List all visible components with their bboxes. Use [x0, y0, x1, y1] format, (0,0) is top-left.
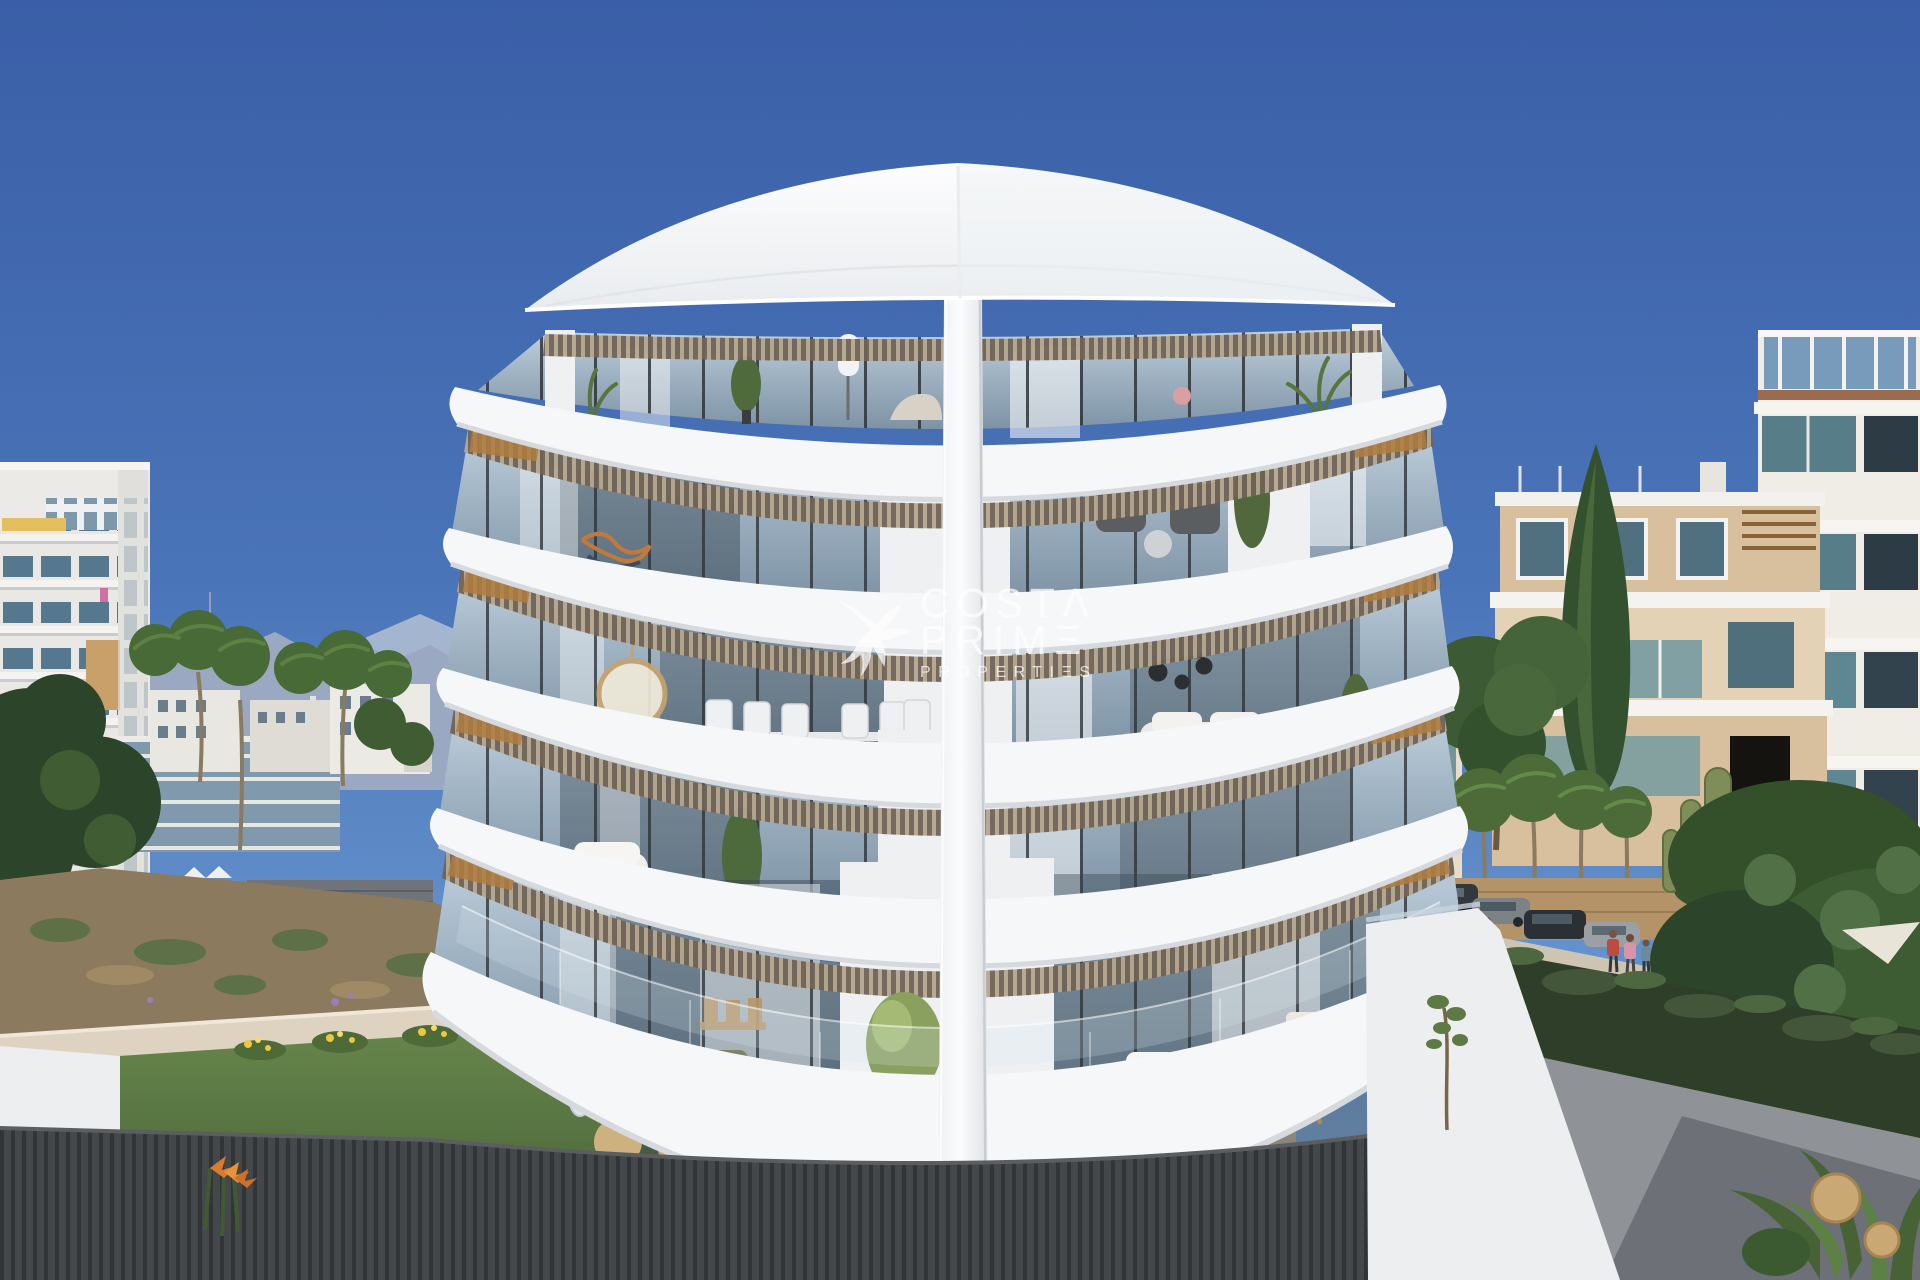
photo-canvas: COSTΛ PRIMΞ PROPERTIΞS	[0, 0, 1920, 1280]
dark-suv	[1524, 910, 1586, 939]
pink-cushion	[1173, 387, 1191, 405]
pink-laundry	[100, 588, 108, 602]
fence-left	[0, 1128, 430, 1280]
rattan-lantern-2	[1865, 1223, 1899, 1257]
yellow-awning	[2, 518, 66, 531]
scene-art	[0, 0, 1920, 1280]
side-table	[1144, 530, 1172, 558]
potted-tree	[731, 356, 761, 412]
central-pillar	[938, 298, 988, 1280]
blue-glass-roof-railing	[1764, 337, 1916, 389]
rattan-lantern-1	[1812, 1174, 1860, 1222]
